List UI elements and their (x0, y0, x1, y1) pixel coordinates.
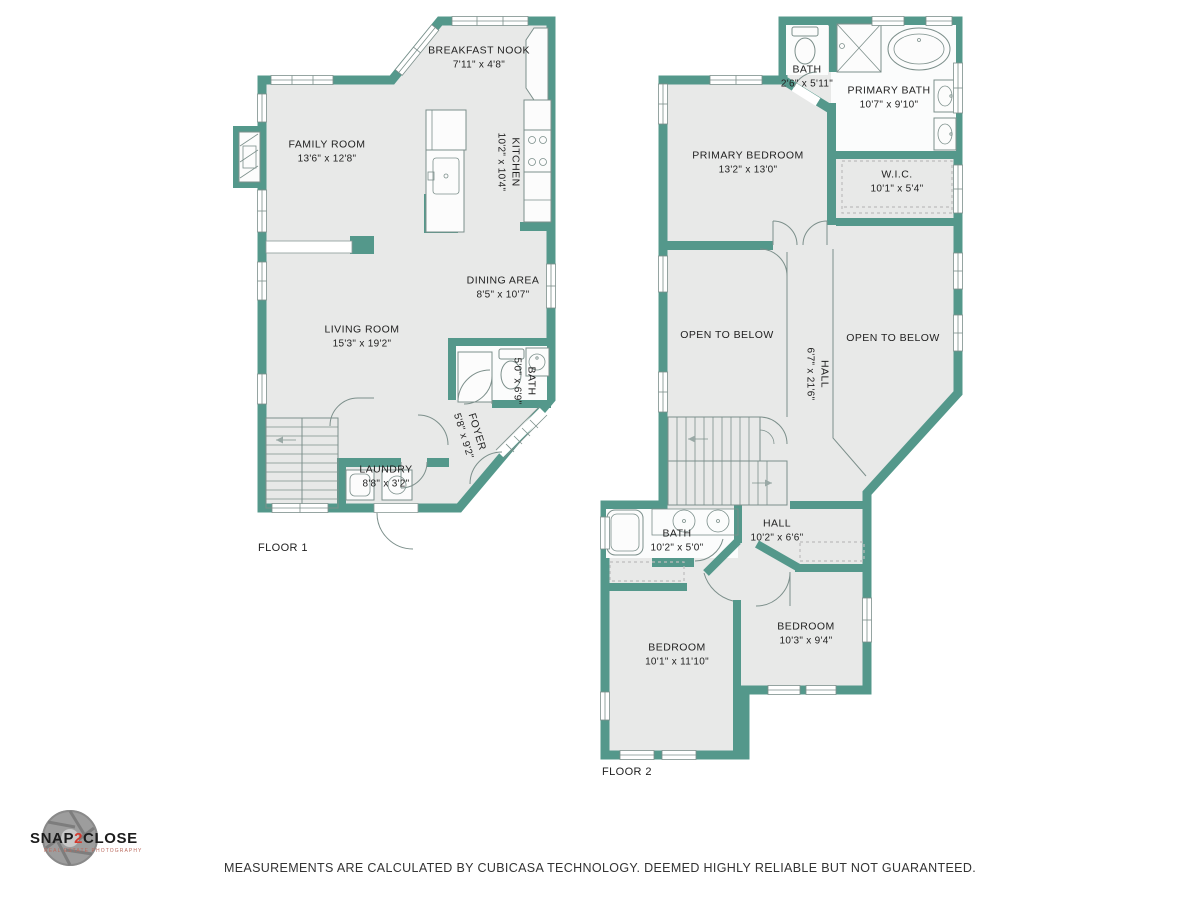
room-label-hall-lower: HALL10'2" x 6'6" (751, 518, 804, 545)
window-marker (954, 253, 963, 289)
room-label-bedroom-left: BEDROOM10'1" x 11'10" (645, 642, 709, 669)
window-marker (547, 264, 556, 308)
window-marker (272, 504, 328, 513)
floor1-caption: FLOOR 1 (258, 542, 308, 554)
window-marker (806, 686, 836, 695)
room-label-family-room: FAMILY ROOM13'6" x 12'8" (289, 139, 366, 166)
bathtub-icon (607, 510, 643, 555)
shower-icon (837, 24, 881, 72)
room-label-open-to-below-right: OPEN TO BELOW (846, 332, 940, 346)
room-label-wic: W.I.C.10'1" x 5'4" (871, 169, 924, 196)
bath1-niche (458, 352, 492, 402)
window-marker (258, 190, 267, 232)
room-label-bath-2: BATH2'6" x 5'11" (781, 64, 833, 91)
window-marker (662, 751, 696, 760)
sink-icon (934, 118, 956, 150)
window-marker (601, 692, 610, 720)
room-label-breakfast-nook: BREAKFAST NOOK7'11" x 4'8" (428, 45, 530, 72)
window-marker (768, 686, 800, 695)
kitchen-island (426, 110, 466, 232)
logo-tagline: REAL ESTATE PHOTOGRAPHY (44, 848, 142, 854)
stove-icon (524, 130, 551, 172)
back-door (374, 504, 418, 550)
window-marker (954, 165, 963, 213)
window-marker (271, 76, 333, 85)
window-marker (872, 17, 904, 26)
window-marker (659, 84, 668, 124)
window-marker (926, 17, 952, 26)
window-marker (863, 598, 872, 642)
window-marker (258, 262, 267, 300)
room-label-bath-1: BATH5'0" x 6'9" (511, 357, 538, 404)
room-label-primary-bedroom: PRIMARY BEDROOM13'2" x 13'0" (692, 150, 803, 177)
window-marker (601, 517, 610, 549)
window-marker (620, 751, 654, 760)
logo-wordmark: SNAP2CLOSE (30, 830, 138, 847)
window-marker (710, 76, 762, 85)
floorplan-drawing (0, 0, 1200, 900)
room-label-primary-bath: PRIMARY BATH10'7" x 9'10" (847, 85, 930, 112)
window-marker (258, 94, 267, 122)
room-label-bedroom-right: BEDROOM10'3" x 9'4" (777, 621, 834, 648)
window-marker (659, 372, 668, 412)
room-label-laundry: LAUNDRY8'8" x 3'2" (359, 464, 412, 491)
window-marker (258, 374, 267, 404)
bathtub-icon (888, 28, 950, 70)
room-label-living-room: LIVING ROOM15'3" x 19'2" (325, 324, 400, 351)
window-marker (452, 17, 528, 26)
sink-icon (934, 80, 956, 112)
room-label-bath-3: BATH10'2" x 5'0" (651, 528, 704, 555)
room-label-dining-area: DINING AREA8'5" x 10'7" (467, 275, 540, 302)
room-label-kitchen: KITCHEN10'2" x 10'4" (495, 133, 522, 192)
room-label-open-to-below-left: OPEN TO BELOW (680, 329, 774, 343)
cased-opening (266, 241, 352, 253)
floor2-caption: FLOOR 2 (602, 766, 652, 778)
window-marker (659, 256, 668, 292)
room-label-hall-upper: HALL6'7" x 21'6" (804, 348, 831, 401)
fireplace-icon (233, 126, 265, 188)
measurement-disclaimer: MEASUREMENTS ARE CALCULATED BY CUBICASA … (0, 861, 1200, 875)
window-marker (954, 63, 963, 113)
window-marker (954, 315, 963, 351)
floorplan-canvas: BREAKFAST NOOK7'11" x 4'8" FAMILY ROOM13… (0, 0, 1200, 900)
